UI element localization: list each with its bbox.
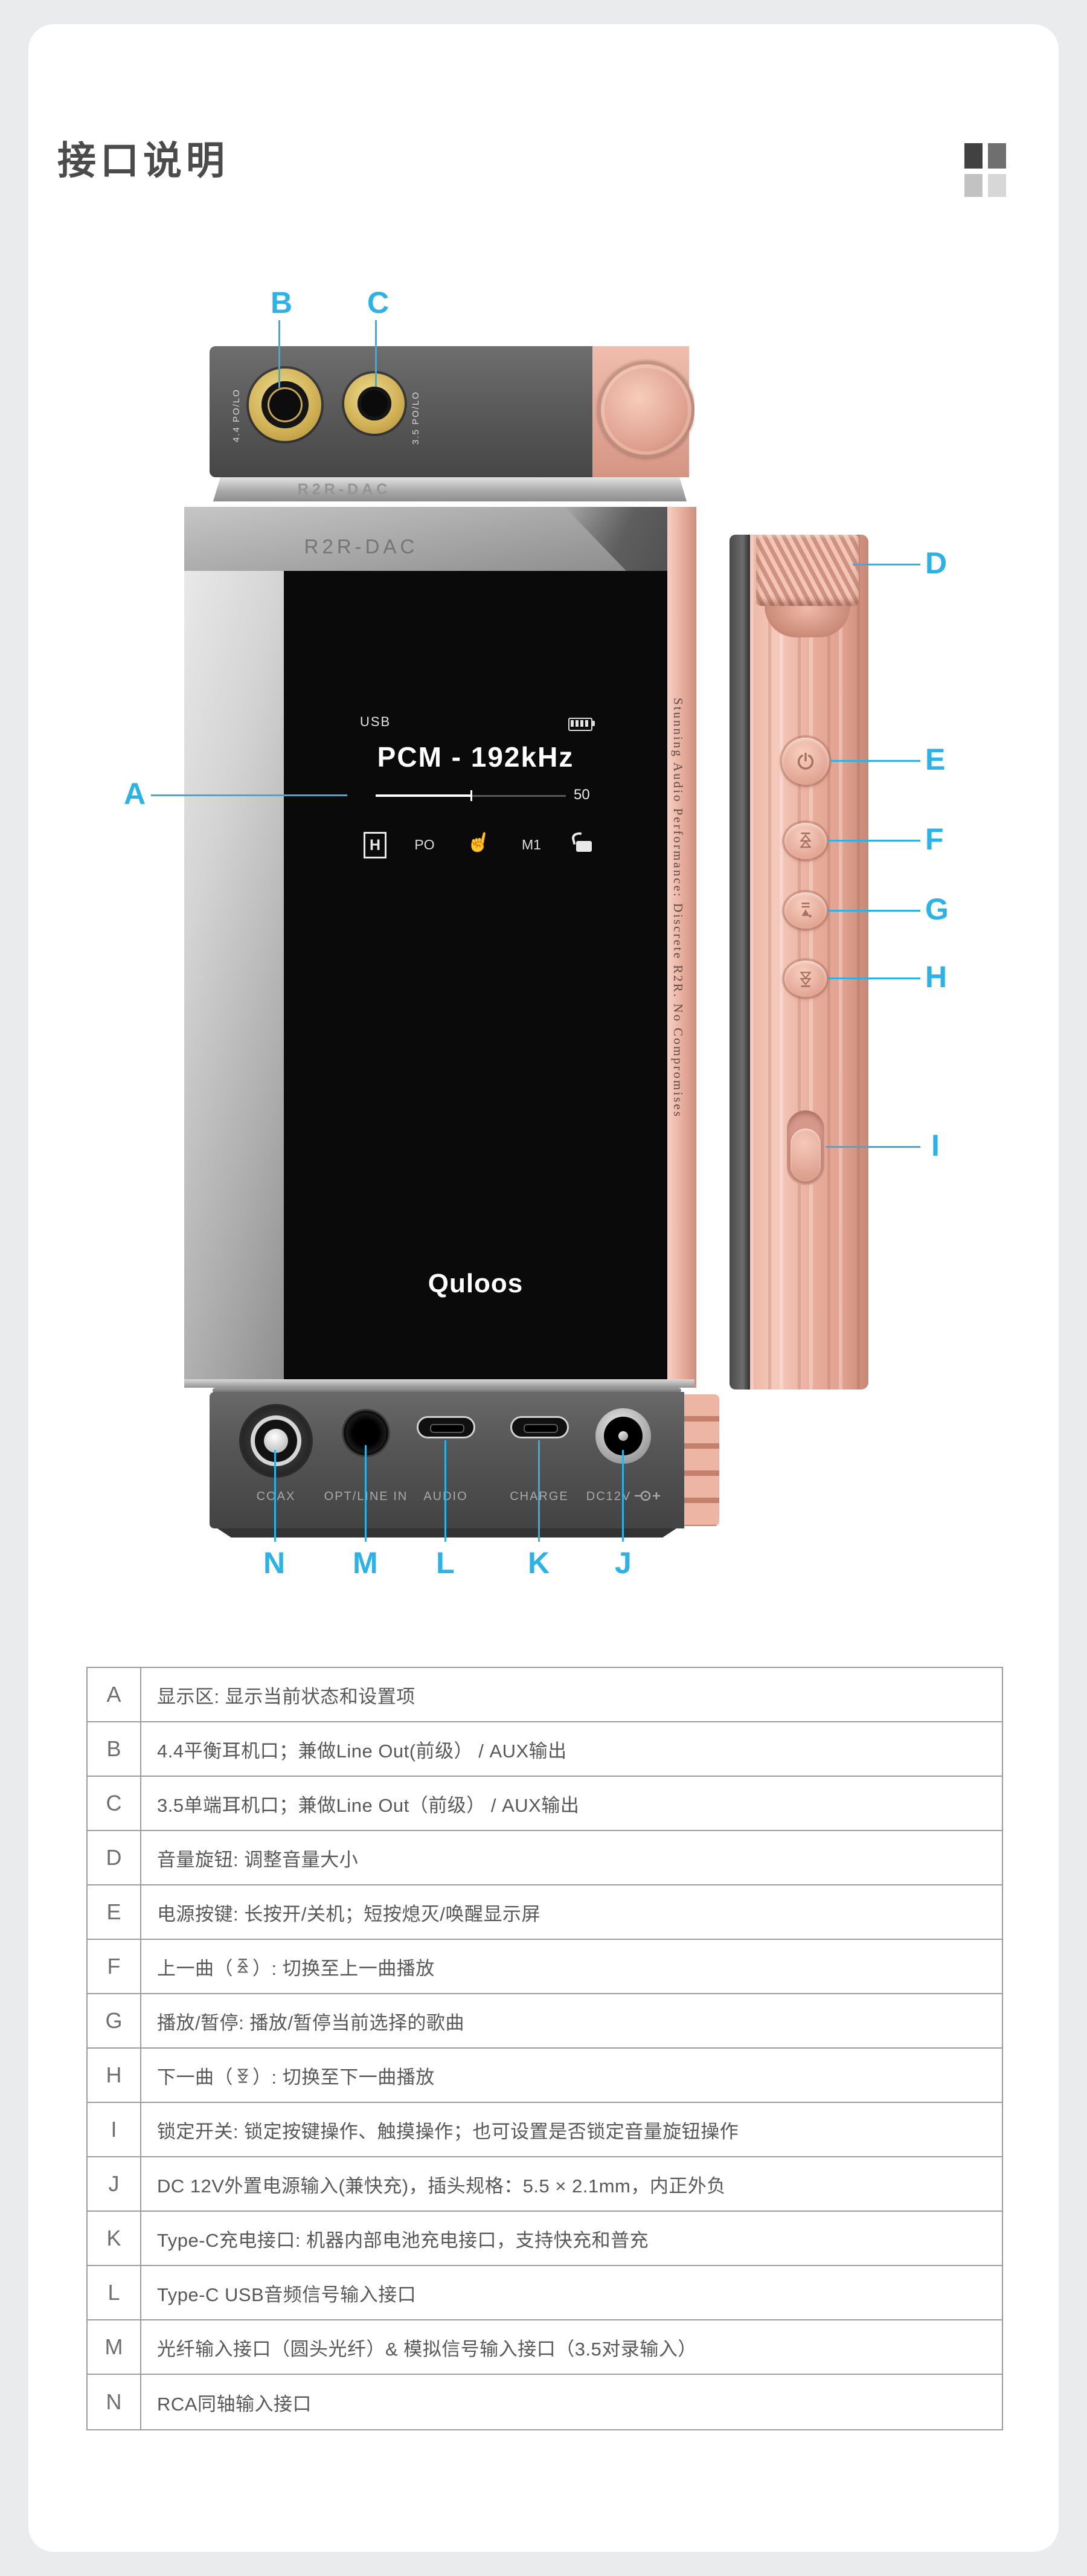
row-text-pre: 上一曲（ — [157, 1953, 233, 1980]
table-row-text: 光纤输入接口（圆头光纤）& 模拟信号输入接口（3.5对录输入） — [141, 2320, 1002, 2374]
jack-3-5mm-hole — [358, 387, 391, 420]
table-row-key: L — [88, 2266, 141, 2319]
leader-J — [622, 1450, 624, 1542]
screen-source-label: USB — [360, 714, 391, 730]
dc-port-pin — [618, 1431, 628, 1441]
screen-format-label: PCM - 192kHz — [284, 741, 667, 773]
leader-B — [278, 320, 280, 388]
edge-slogan: Stunning Audio Performance: Discrete R2R… — [670, 698, 685, 1308]
callout-D: D — [925, 546, 947, 581]
leader-G — [828, 910, 920, 912]
table-row-key: E — [88, 1885, 141, 1939]
volume-value: 50 — [574, 787, 590, 803]
previous-track-button — [784, 823, 827, 859]
table-row: C 3.5单端耳机口；兼做Line Out（前级） / AUX输出 — [88, 1777, 1002, 1831]
callout-F: F — [925, 822, 944, 857]
front-left-frame — [184, 507, 284, 1383]
table-row-text: 锁定开关: 锁定按键操作、触摸操作；也可设置是否锁定音量旋钮操作 — [141, 2103, 1002, 2156]
table-row-text: DC 12V外置电源输入(兼快充)，插头规格：5.5 × 2.1mm，内正外负 — [141, 2157, 1002, 2211]
next-track-icon — [798, 969, 813, 988]
table-row: N RCA同轴输入接口 — [88, 2375, 1002, 2429]
table-row: I 锁定开关: 锁定按键操作、触摸操作；也可设置是否锁定音量旋钮操作 — [88, 2103, 1002, 2157]
leader-L — [444, 1440, 446, 1542]
table-row-key: K — [88, 2212, 141, 2265]
table-row-text: 电源按键: 长按开/关机；短按熄灭/唤醒显示屏 — [141, 1885, 1002, 1939]
table-row-text: 3.5单端耳机口；兼做Line Out（前级） / AUX输出 — [141, 1777, 1002, 1830]
output-badge: PO — [409, 837, 440, 853]
square-dark — [964, 143, 983, 169]
callout-M: M — [353, 1545, 378, 1580]
table-row-text: Type-C USB音频信号输入接口 — [141, 2266, 1002, 2319]
table-row: J DC 12V外置电源输入(兼快充)，插头规格：5.5 × 2.1mm，内正外… — [88, 2157, 1002, 2212]
leader-E — [830, 760, 920, 762]
callout-I: I — [931, 1128, 940, 1163]
callout-K: K — [528, 1545, 550, 1580]
row-text-post: ）: 切换至上一曲播放 — [252, 1953, 435, 1980]
dc-polarity-icon — [634, 1489, 662, 1503]
leader-H — [828, 977, 920, 979]
table-row-key: H — [88, 2049, 141, 2102]
square-mid — [988, 143, 1006, 169]
brand-logo: Quloos — [284, 1269, 667, 1299]
callout-H: H — [925, 959, 947, 994]
prev-track-icon — [798, 831, 813, 851]
leader-D — [853, 564, 920, 565]
play-pause-icon — [798, 901, 813, 920]
table-row: E 电源按键: 长按开/关机；短按熄灭/唤醒显示屏 — [88, 1885, 1002, 1940]
jack-4-4-label: 4.4 PO/LO — [231, 376, 242, 442]
power-button — [782, 738, 829, 785]
front-bottom-frame — [184, 1379, 694, 1388]
side-back-edge — [729, 535, 750, 1389]
volume-slider-fill — [376, 794, 472, 797]
display-screen — [284, 571, 667, 1379]
table-row-text: 播放/暂停: 播放/暂停当前选择的歌曲 — [141, 1994, 1002, 2047]
table-row-text: 下一曲（ ）: 切换至下一曲播放 — [141, 2049, 1002, 2102]
callout-B: B — [271, 285, 292, 320]
volume-knob-top — [598, 361, 694, 458]
front-engraving: R2R-DAC — [301, 535, 422, 558]
table-row-text: 显示区: 显示当前状态和设置项 — [141, 1668, 1002, 1721]
volume-knob-side — [756, 535, 859, 606]
table-row-text: 上一曲（ ）: 切换至上一曲播放 — [141, 1940, 1002, 1993]
manual-page: 接口说明 R2R-DAC 4.4 PO/LO 3.5 PO/LO B C R2R… — [0, 0, 1087, 2576]
table-row-text: RCA同轴输入接口 — [141, 2375, 1002, 2429]
row-text-pre: 下一曲（ — [157, 2062, 233, 2089]
interface-table: A 显示区: 显示当前状态和设置项 B 4.4平衡耳机口；兼做Line Out(… — [86, 1667, 1003, 2430]
leader-C — [375, 320, 377, 387]
callout-J: J — [615, 1545, 632, 1580]
next-track-icon — [236, 2066, 250, 2084]
dc12v-label: DC12V — [579, 1490, 639, 1504]
callout-C: C — [367, 285, 389, 320]
square-lighter — [988, 174, 1006, 197]
bottom-bevel — [217, 1528, 676, 1538]
top-bevel-engraving: R2R-DAC — [284, 481, 405, 498]
table-row: D 音量旋钮: 调整音量大小 — [88, 1831, 1002, 1885]
leader-I — [826, 1146, 920, 1148]
battery-nub — [592, 721, 595, 726]
usbc-audio-slot — [430, 1424, 464, 1433]
row-text-post: ）: 切换至下一曲播放 — [252, 2062, 435, 2089]
bottom-pink-edge — [684, 1394, 719, 1526]
leader-M — [365, 1445, 367, 1542]
coax-label: COAX — [246, 1490, 306, 1504]
callout-E: E — [925, 742, 945, 777]
leader-K — [538, 1440, 540, 1542]
table-row-key: I — [88, 2103, 141, 2156]
table-row-key: G — [88, 1994, 141, 2047]
unlock-icon-body — [576, 841, 592, 852]
table-row: M 光纤输入接口（圆头光纤）& 模拟信号输入接口（3.5对录输入） — [88, 2320, 1002, 2375]
table-row: A 显示区: 显示当前状态和设置项 — [88, 1668, 1002, 1722]
jack-4-4mm-hole — [261, 381, 309, 428]
table-row-key: C — [88, 1777, 141, 1830]
table-row-key: M — [88, 2320, 141, 2374]
table-row: B 4.4平衡耳机口；兼做Line Out(前级） / AUX输出 — [88, 1722, 1002, 1777]
callout-L: L — [436, 1545, 455, 1580]
gain-badge: H — [364, 832, 386, 858]
coax-port-pin — [264, 1429, 288, 1453]
leader-F — [828, 840, 920, 842]
table-row-text: Type-C充电接口: 机器内部电池充电接口，支持快充和普充 — [141, 2212, 1002, 2265]
table-row-key: D — [88, 1831, 141, 1884]
next-track-button — [784, 961, 827, 997]
callout-A: A — [124, 776, 146, 811]
table-row-key: A — [88, 1668, 141, 1721]
callout-N: N — [263, 1545, 285, 1580]
power-icon — [797, 752, 815, 771]
play-pause-button — [784, 892, 827, 929]
table-row-key: F — [88, 1940, 141, 1993]
jack-3-5-label: 3.5 PO/LO — [411, 378, 421, 445]
leader-A — [151, 794, 347, 796]
lock-switch — [790, 1129, 821, 1182]
table-row: G 播放/暂停: 播放/暂停当前选择的歌曲 — [88, 1994, 1002, 2049]
table-row: L Type-C USB音频信号输入接口 — [88, 2266, 1002, 2320]
table-row: H 下一曲（ ）: 切换至下一曲播放 — [88, 2049, 1002, 2103]
touch-icon: ☝ — [464, 828, 490, 855]
memory-badge: M1 — [516, 837, 547, 853]
table-row-key: N — [88, 2375, 141, 2429]
usbc-charge-slot — [524, 1424, 558, 1433]
volume-slider-track — [472, 795, 566, 797]
square-light — [964, 174, 983, 197]
table-row-key: J — [88, 2157, 141, 2211]
table-row-text: 音量旋钮: 调整音量大小 — [141, 1831, 1002, 1884]
prev-track-icon — [236, 1957, 250, 1975]
table-row: F 上一曲（ ）: 切换至上一曲播放 — [88, 1940, 1002, 1994]
battery-bars — [571, 720, 588, 727]
table-row: K Type-C充电接口: 机器内部电池充电接口，支持快充和普充 — [88, 2212, 1002, 2266]
callout-G: G — [925, 892, 949, 927]
leader-N — [274, 1450, 276, 1542]
table-row-text: 4.4平衡耳机口；兼做Line Out(前级） / AUX输出 — [141, 1722, 1002, 1776]
table-row-key: B — [88, 1722, 141, 1776]
page-title: 接口说明 — [57, 130, 229, 185]
